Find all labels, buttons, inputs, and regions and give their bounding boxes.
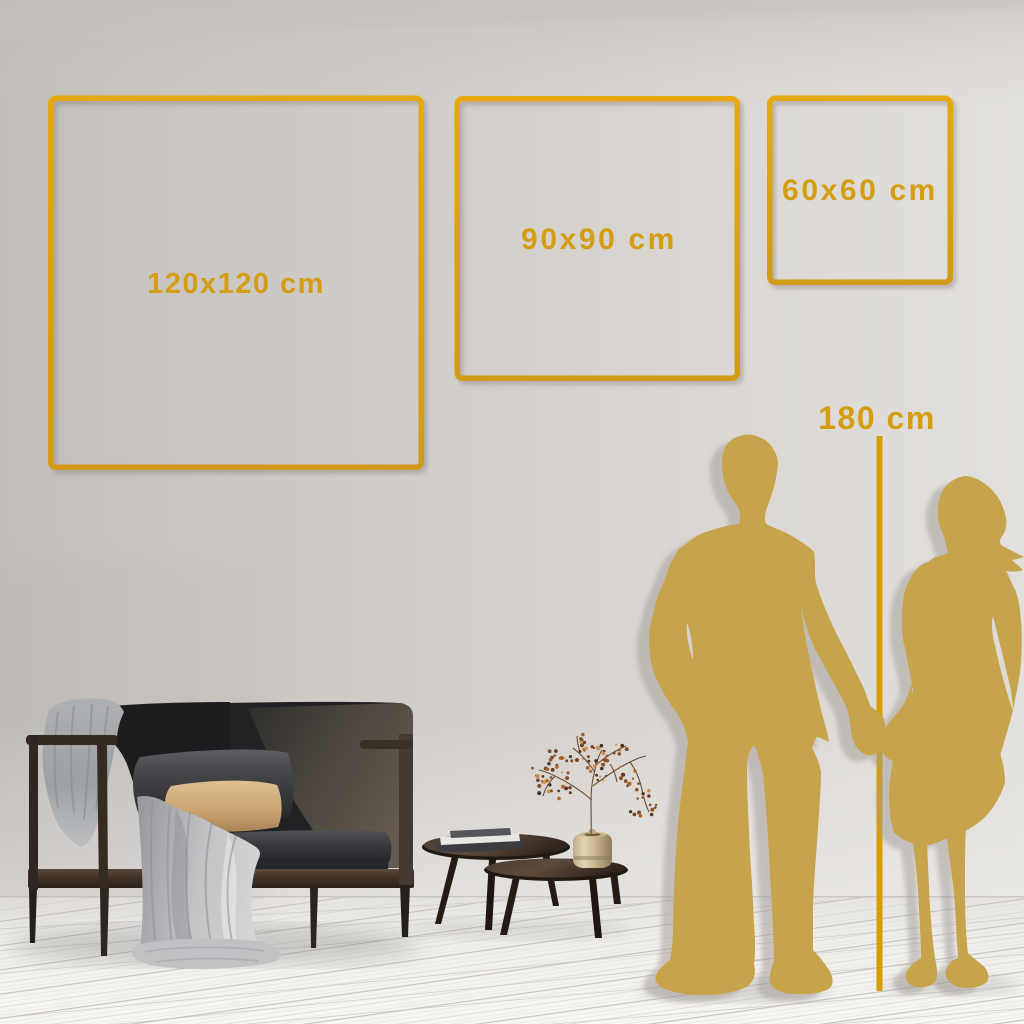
svg-text:90x90 cm: 90x90 cm: [521, 223, 677, 256]
svg-text:120x120 cm: 120x120 cm: [147, 268, 325, 300]
svg-text:180 cm: 180 cm: [818, 400, 936, 436]
svg-text:60x60 cm: 60x60 cm: [782, 174, 938, 207]
